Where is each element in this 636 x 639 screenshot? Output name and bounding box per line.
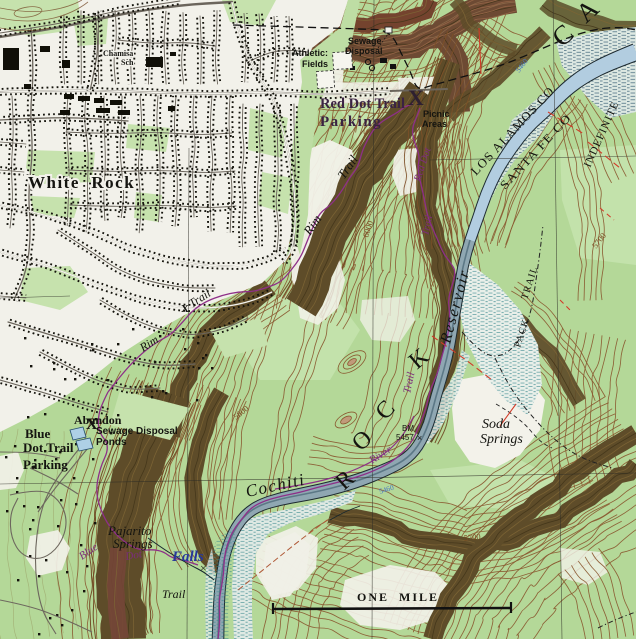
svg-text:Ponds: Ponds xyxy=(96,437,127,448)
svg-text:5700: 5700 xyxy=(463,531,481,543)
svg-text:Sewage: Sewage xyxy=(348,36,382,46)
svg-text:Parking: Parking xyxy=(23,457,68,472)
svg-text:Trail: Trail xyxy=(162,587,186,601)
svg-text:Falls: Falls xyxy=(171,549,204,565)
svg-text:Springs: Springs xyxy=(480,432,523,447)
svg-text:Soda: Soda xyxy=(482,417,510,432)
svg-text:×: × xyxy=(200,561,207,575)
svg-text:Fields: Fields xyxy=(302,59,328,69)
svg-text:Areas: Areas xyxy=(422,119,447,129)
svg-text:X: X xyxy=(408,85,424,110)
svg-text:White Rock: White Rock xyxy=(28,173,135,192)
svg-text:×: × xyxy=(417,433,422,443)
svg-text:Red Dot Trail: Red Dot Trail xyxy=(320,96,405,112)
svg-text:X: X xyxy=(86,416,98,433)
svg-text:Sch: Sch xyxy=(121,58,134,67)
svg-text:BM: BM xyxy=(402,424,414,433)
svg-text:X: X xyxy=(181,303,189,315)
svg-text:Chamisa: Chamisa xyxy=(103,49,133,58)
svg-text:Picnic: Picnic xyxy=(423,109,450,119)
svg-text:Athletic:: Athletic: xyxy=(292,48,328,58)
svg-text:Parking: Parking xyxy=(320,114,382,130)
svg-text:5457: 5457 xyxy=(396,433,414,442)
svg-text:Sewage Disposal: Sewage Disposal xyxy=(96,426,178,437)
svg-text:Abandon: Abandon xyxy=(74,413,122,427)
svg-text:ONE MILE: ONE MILE xyxy=(357,590,439,604)
svg-text:Blue: Blue xyxy=(25,426,51,441)
svg-text:Disposal: Disposal xyxy=(345,46,383,56)
svg-text:Dot Trail: Dot Trail xyxy=(23,440,74,455)
